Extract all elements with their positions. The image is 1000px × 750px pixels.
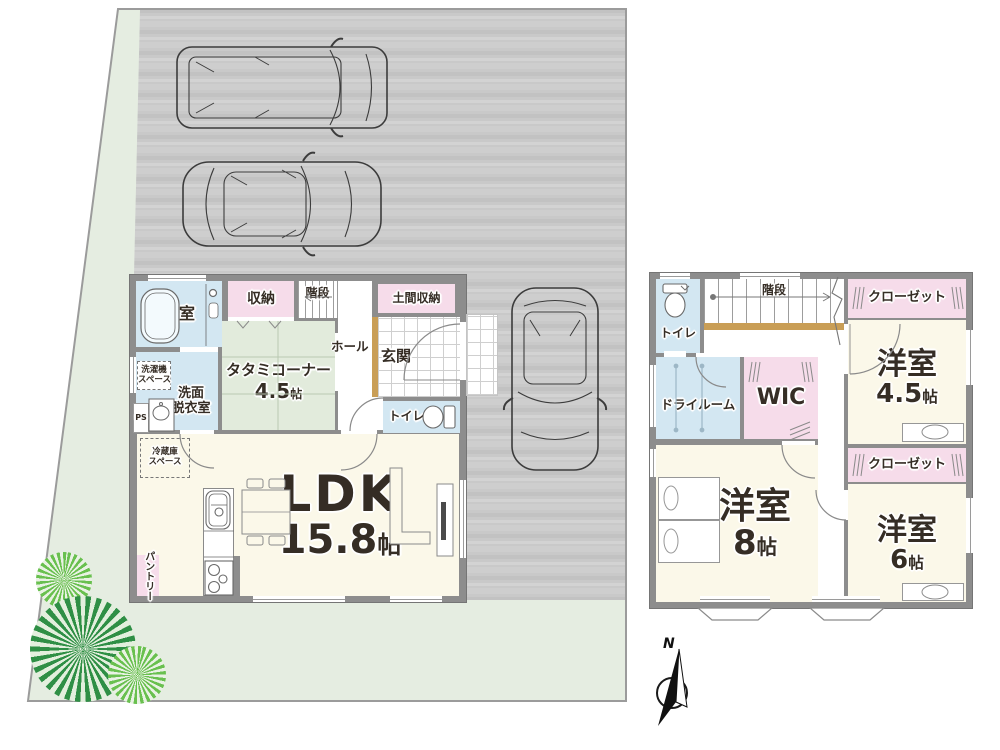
room-label: 玄関 [381,348,411,365]
second-floor-plan: トイレ 階段 クローゼット 洋室 4.5帖 ドライルーム WIC 洋室 8帖 [650,273,972,608]
room-closet-b: クローゼット [848,448,966,482]
kitchen-counter [203,488,234,596]
size-unit: 帖 [908,554,924,572]
room-label: LDK [279,469,400,519]
room-label: 収納 [247,291,275,307]
window [390,596,442,602]
bed [658,520,720,563]
washer-space-label: スペース [138,376,170,386]
window [812,596,880,602]
room-doma-storage: 土間収納 [378,284,455,313]
room-label: 階段 [762,284,786,298]
size-value: 4.5 [876,379,922,409]
room-label: タタミコーナー [226,362,331,379]
size-unit: 帖 [290,387,302,401]
room-label: ドライルーム [661,398,736,412]
room-size-label: 8帖 [733,526,777,560]
dryroom-door-opening [696,353,726,357]
room-label: トイレ [388,410,424,424]
shelf-counter [902,423,964,442]
compass: N [657,636,687,726]
first-floor-plan: 浴室 収納 階段 土間収納 玄関 トイレ タタミコーナー 4.5帖 洗面 [130,275,466,602]
stairs-first-floor: 階段 [298,281,338,318]
pipe-space-label: PS [135,413,147,422]
room-toilet-2f: トイレ [656,279,700,353]
room-bath: 浴室 [136,281,222,347]
room-label: WIC [757,385,806,410]
compass-north-label: N [663,636,675,652]
room-storage: 収納 [228,281,294,317]
room-label: 土間収納 [392,292,440,306]
hall-lower [338,397,383,430]
stairs-landing-wood [704,323,844,330]
bed [658,477,720,520]
car-top-view-3 [504,288,606,470]
window [740,273,800,279]
room-label: トイレ [660,327,696,341]
eave-marks [698,608,884,620]
room-label: 洋室 [877,348,937,381]
window [130,357,136,393]
shelf-counter [902,583,964,601]
size-value: 6 [890,545,908,575]
fridge-space: 冷蔵庫 スペース [140,438,190,478]
room-label: 階段 [305,287,329,301]
room-label: クローゼット [868,291,946,306]
size-unit: 帖 [377,531,401,559]
floorplan-canvas: 浴室 収納 階段 土間収納 玄関 トイレ タタミコーナー 4.5帖 洗面 [0,0,1000,750]
room-size-label: 6帖 [890,547,924,573]
window [148,275,206,281]
room-label: 洗面 [178,387,204,402]
car-top-view-1 [177,39,387,137]
room-label: 脱衣室 [171,402,210,417]
room-dryroom: ドライルーム [656,357,740,439]
ldk-door-opening [341,430,377,434]
room-toilet-1f: トイレ [383,401,460,433]
room-label: 洋室 [877,514,937,547]
size-value: 8 [733,523,757,563]
window [966,330,974,385]
pipe-space: PS [133,403,149,433]
room-genkan: 玄関 [378,317,460,397]
window [253,596,345,602]
room-wic: WIC [744,357,818,439]
size-value: 4.5 [255,379,290,403]
fridge-space-label: スペース [141,458,189,468]
room-size-label: 4.5帖 [255,380,302,403]
kitchen-wall-stub [234,556,240,596]
corridor [818,330,844,602]
entrance-porch [466,314,498,396]
size-unit: 帖 [922,388,938,406]
window [700,596,770,602]
window [650,449,656,477]
hall-label-1f: ホール [331,336,369,355]
tree-small-2 [108,646,166,704]
room-size-label: 15.8帖 [279,519,402,561]
size-value: 15.8 [279,517,378,563]
washer-space: 洗濯機 スペース [137,361,171,390]
room-label: 浴室 [163,305,195,323]
room-label: パントリー [142,551,154,601]
room-label: 洋室 [719,487,791,527]
room-closet-a: クローゼット [848,279,966,318]
stairs-second-floor: 階段 [704,279,844,323]
room-label: クローゼット [868,458,946,473]
size-unit: 帖 [757,535,777,559]
window [966,498,974,553]
room-size-label: 4.5帖 [876,381,938,407]
window [460,480,466,558]
car-top-view-2 [183,153,381,256]
bedroom-4-5-door-opening [844,324,848,374]
washroom-ldk-opening [180,430,214,434]
window [660,273,690,279]
window [650,365,656,427]
room-pantry: パントリー [137,555,159,596]
bedroom-8-door-opening [782,441,815,445]
room-tatami-corner: タタミコーナー 4.5帖 [222,321,335,430]
bedroom-6-door-opening [844,490,848,520]
